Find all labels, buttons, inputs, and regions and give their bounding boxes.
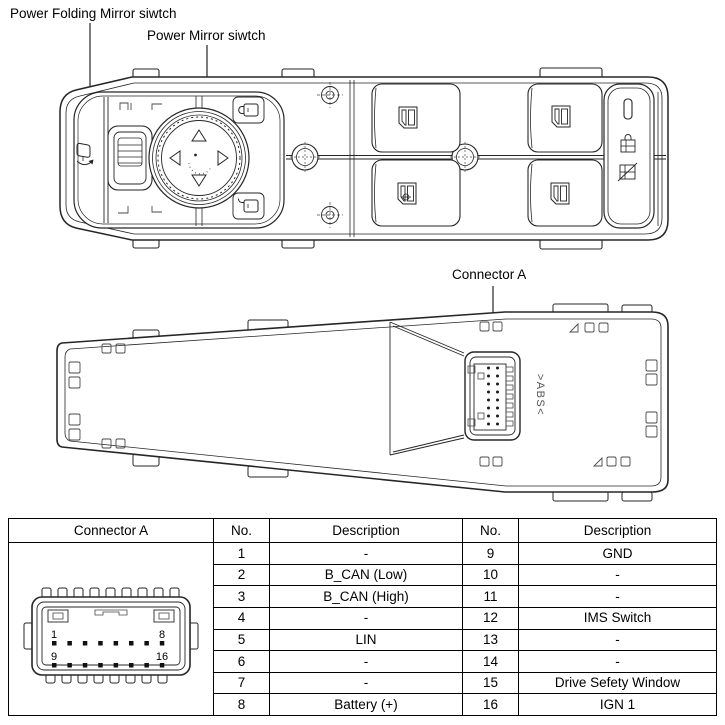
back-housing-outline bbox=[57, 304, 668, 501]
pin-desc-cell: - bbox=[519, 586, 717, 608]
pin-desc-cell: LIN bbox=[270, 629, 463, 651]
pin-no-cell: 14 bbox=[463, 651, 519, 673]
mirror-select-slider bbox=[108, 126, 152, 190]
pin-desc-cell: - bbox=[519, 564, 717, 586]
header-no-right: No. bbox=[463, 519, 519, 543]
pin-desc-cell: IGN 1 bbox=[519, 694, 717, 716]
pin-no-cell: 16 bbox=[463, 694, 519, 716]
table-row: 1 8 9 16 bbox=[9, 543, 717, 565]
header-description-right: Description bbox=[519, 519, 717, 543]
pin-no-cell: 10 bbox=[463, 564, 519, 586]
header-description-left: Description bbox=[270, 519, 463, 543]
abs-material-marking: >ABS< bbox=[534, 374, 546, 416]
pin-desc-cell: Drive Sefety Window bbox=[519, 672, 717, 694]
pin-no-cell: 11 bbox=[463, 586, 519, 608]
power-window-switch-diagram-page: Power Folding Mirror siwtch Power Mirror… bbox=[0, 0, 725, 725]
pin-label-1: 1 bbox=[51, 629, 57, 641]
pin-desc-cell: - bbox=[270, 543, 463, 565]
window-switch-front-left bbox=[372, 84, 460, 152]
pin-no-cell: 9 bbox=[463, 543, 519, 565]
pin-no-cell: 5 bbox=[214, 629, 270, 651]
pin-desc-cell: IMS Switch bbox=[519, 607, 717, 629]
pin-label-8: 8 bbox=[159, 629, 165, 641]
pin-desc-cell: Battery (+) bbox=[270, 694, 463, 716]
pin-no-cell: 6 bbox=[214, 651, 270, 673]
pin-label-9: 9 bbox=[51, 651, 57, 663]
pin-desc-cell: B_CAN (Low) bbox=[270, 564, 463, 586]
pin-desc-cell: B_CAN (High) bbox=[270, 586, 463, 608]
switch-front-view-diagram bbox=[0, 0, 725, 262]
pin-desc-cell: - bbox=[270, 672, 463, 694]
pin-desc-cell: - bbox=[519, 629, 717, 651]
pin-desc-cell: - bbox=[270, 651, 463, 673]
pin-label-16: 16 bbox=[156, 651, 168, 663]
pin-no-cell: 1 bbox=[214, 543, 270, 565]
pin-no-cell: 12 bbox=[463, 607, 519, 629]
pin-no-cell: 2 bbox=[214, 564, 270, 586]
window-lock-switch bbox=[604, 84, 654, 228]
table-header-row: Connector A No. Description No. Descript… bbox=[9, 519, 717, 543]
window-switch-rear-left bbox=[372, 160, 460, 226]
switch-back-view-diagram: >ABS< bbox=[0, 262, 725, 514]
pin-no-cell: 4 bbox=[214, 607, 270, 629]
pin-desc-cell: - bbox=[270, 607, 463, 629]
connector-pinout-table: Connector A No. Description No. Descript… bbox=[8, 518, 717, 716]
pin-desc-cell: - bbox=[519, 651, 717, 673]
connector-a-socket bbox=[465, 352, 520, 440]
header-connector-a: Connector A bbox=[9, 519, 214, 543]
pin-no-cell: 7 bbox=[214, 672, 270, 694]
pin-desc-cell: GND bbox=[519, 543, 717, 565]
header-no-left: No. bbox=[214, 519, 270, 543]
pin-no-cell: 3 bbox=[214, 586, 270, 608]
connector-pinout-diagram: 1 8 9 16 bbox=[10, 543, 212, 715]
connector-a-drawing-cell: 1 8 9 16 bbox=[9, 543, 214, 716]
pin-no-cell: 8 bbox=[214, 694, 270, 716]
window-switch-rear-right bbox=[528, 160, 602, 226]
window-switch-front-right bbox=[528, 84, 602, 152]
pin-no-cell: 13 bbox=[463, 629, 519, 651]
pin-no-cell: 15 bbox=[463, 672, 519, 694]
